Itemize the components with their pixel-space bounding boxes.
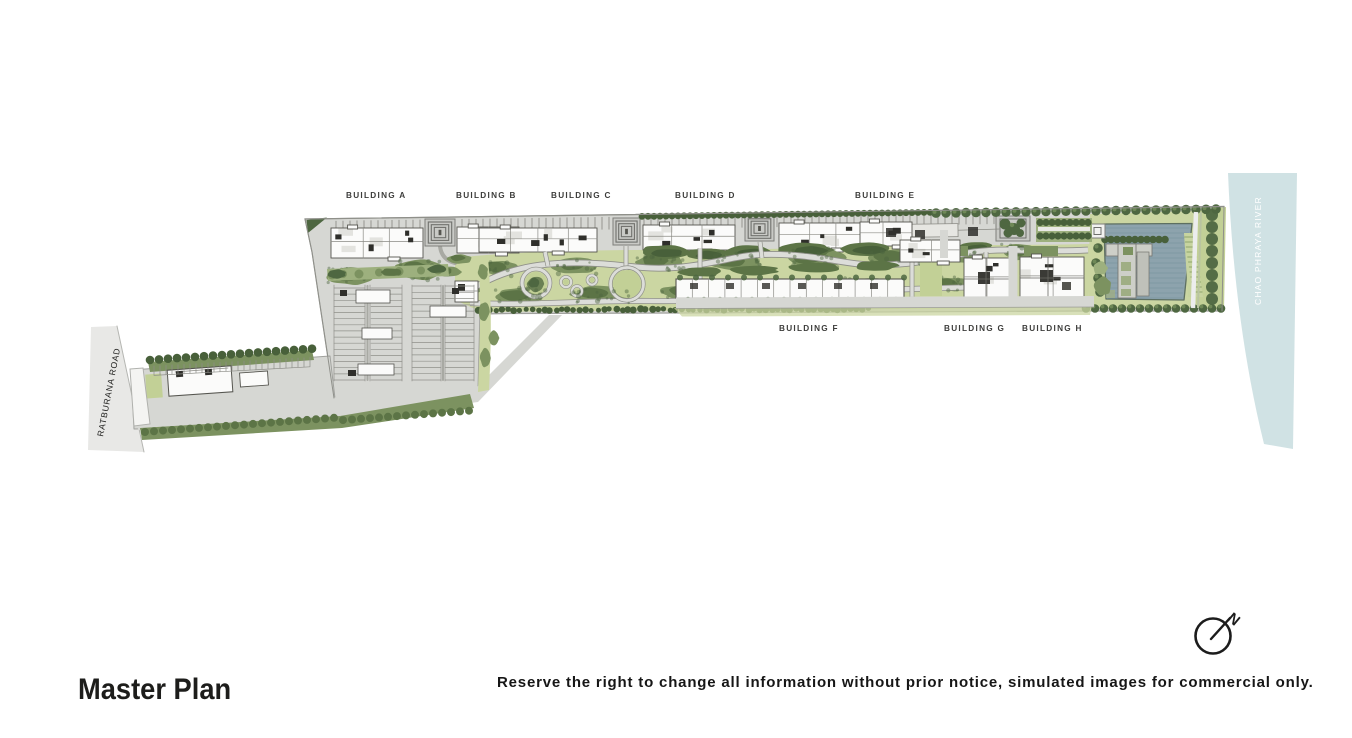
svg-text:BUILDING A: BUILDING A <box>346 191 406 200</box>
svg-text:BUILDING C: BUILDING C <box>551 191 612 200</box>
svg-text:BUILDING G: BUILDING G <box>944 324 1005 333</box>
svg-text:BUILDING E: BUILDING E <box>855 191 915 200</box>
svg-text:BUILDING B: BUILDING B <box>456 191 517 200</box>
svg-text:BUILDING D: BUILDING D <box>675 191 736 200</box>
svg-text:BUILDING H: BUILDING H <box>1022 324 1083 333</box>
svg-text:BUILDING F: BUILDING F <box>779 324 839 333</box>
svg-text:CHAO PHRAYA RIVER: CHAO PHRAYA RIVER <box>1253 196 1263 305</box>
